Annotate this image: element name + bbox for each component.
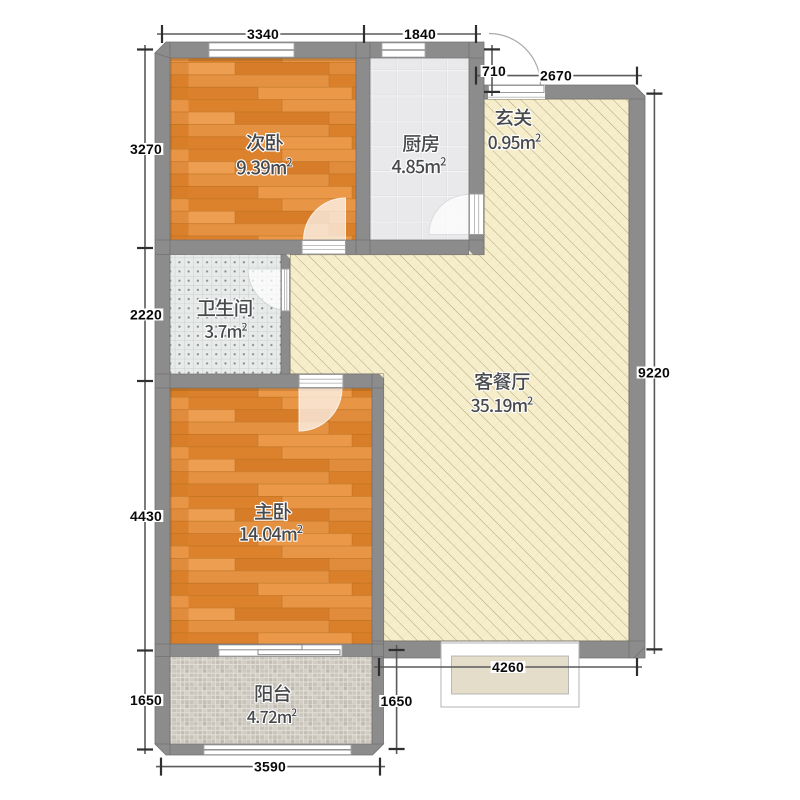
svg-text:1840: 1840: [404, 26, 436, 42]
svg-text:3590: 3590: [254, 759, 286, 775]
svg-text:710: 710: [482, 63, 506, 79]
svg-text:4260: 4260: [492, 659, 524, 675]
svg-text:3270: 3270: [130, 141, 162, 157]
svg-text:4430: 4430: [130, 508, 162, 524]
svg-text:2220: 2220: [130, 307, 162, 323]
svg-text:9220: 9220: [638, 365, 670, 381]
svg-text:3340: 3340: [247, 26, 279, 42]
svg-text:1650: 1650: [381, 693, 413, 709]
svg-text:1650: 1650: [130, 692, 162, 708]
svg-text:2670: 2670: [540, 68, 572, 84]
